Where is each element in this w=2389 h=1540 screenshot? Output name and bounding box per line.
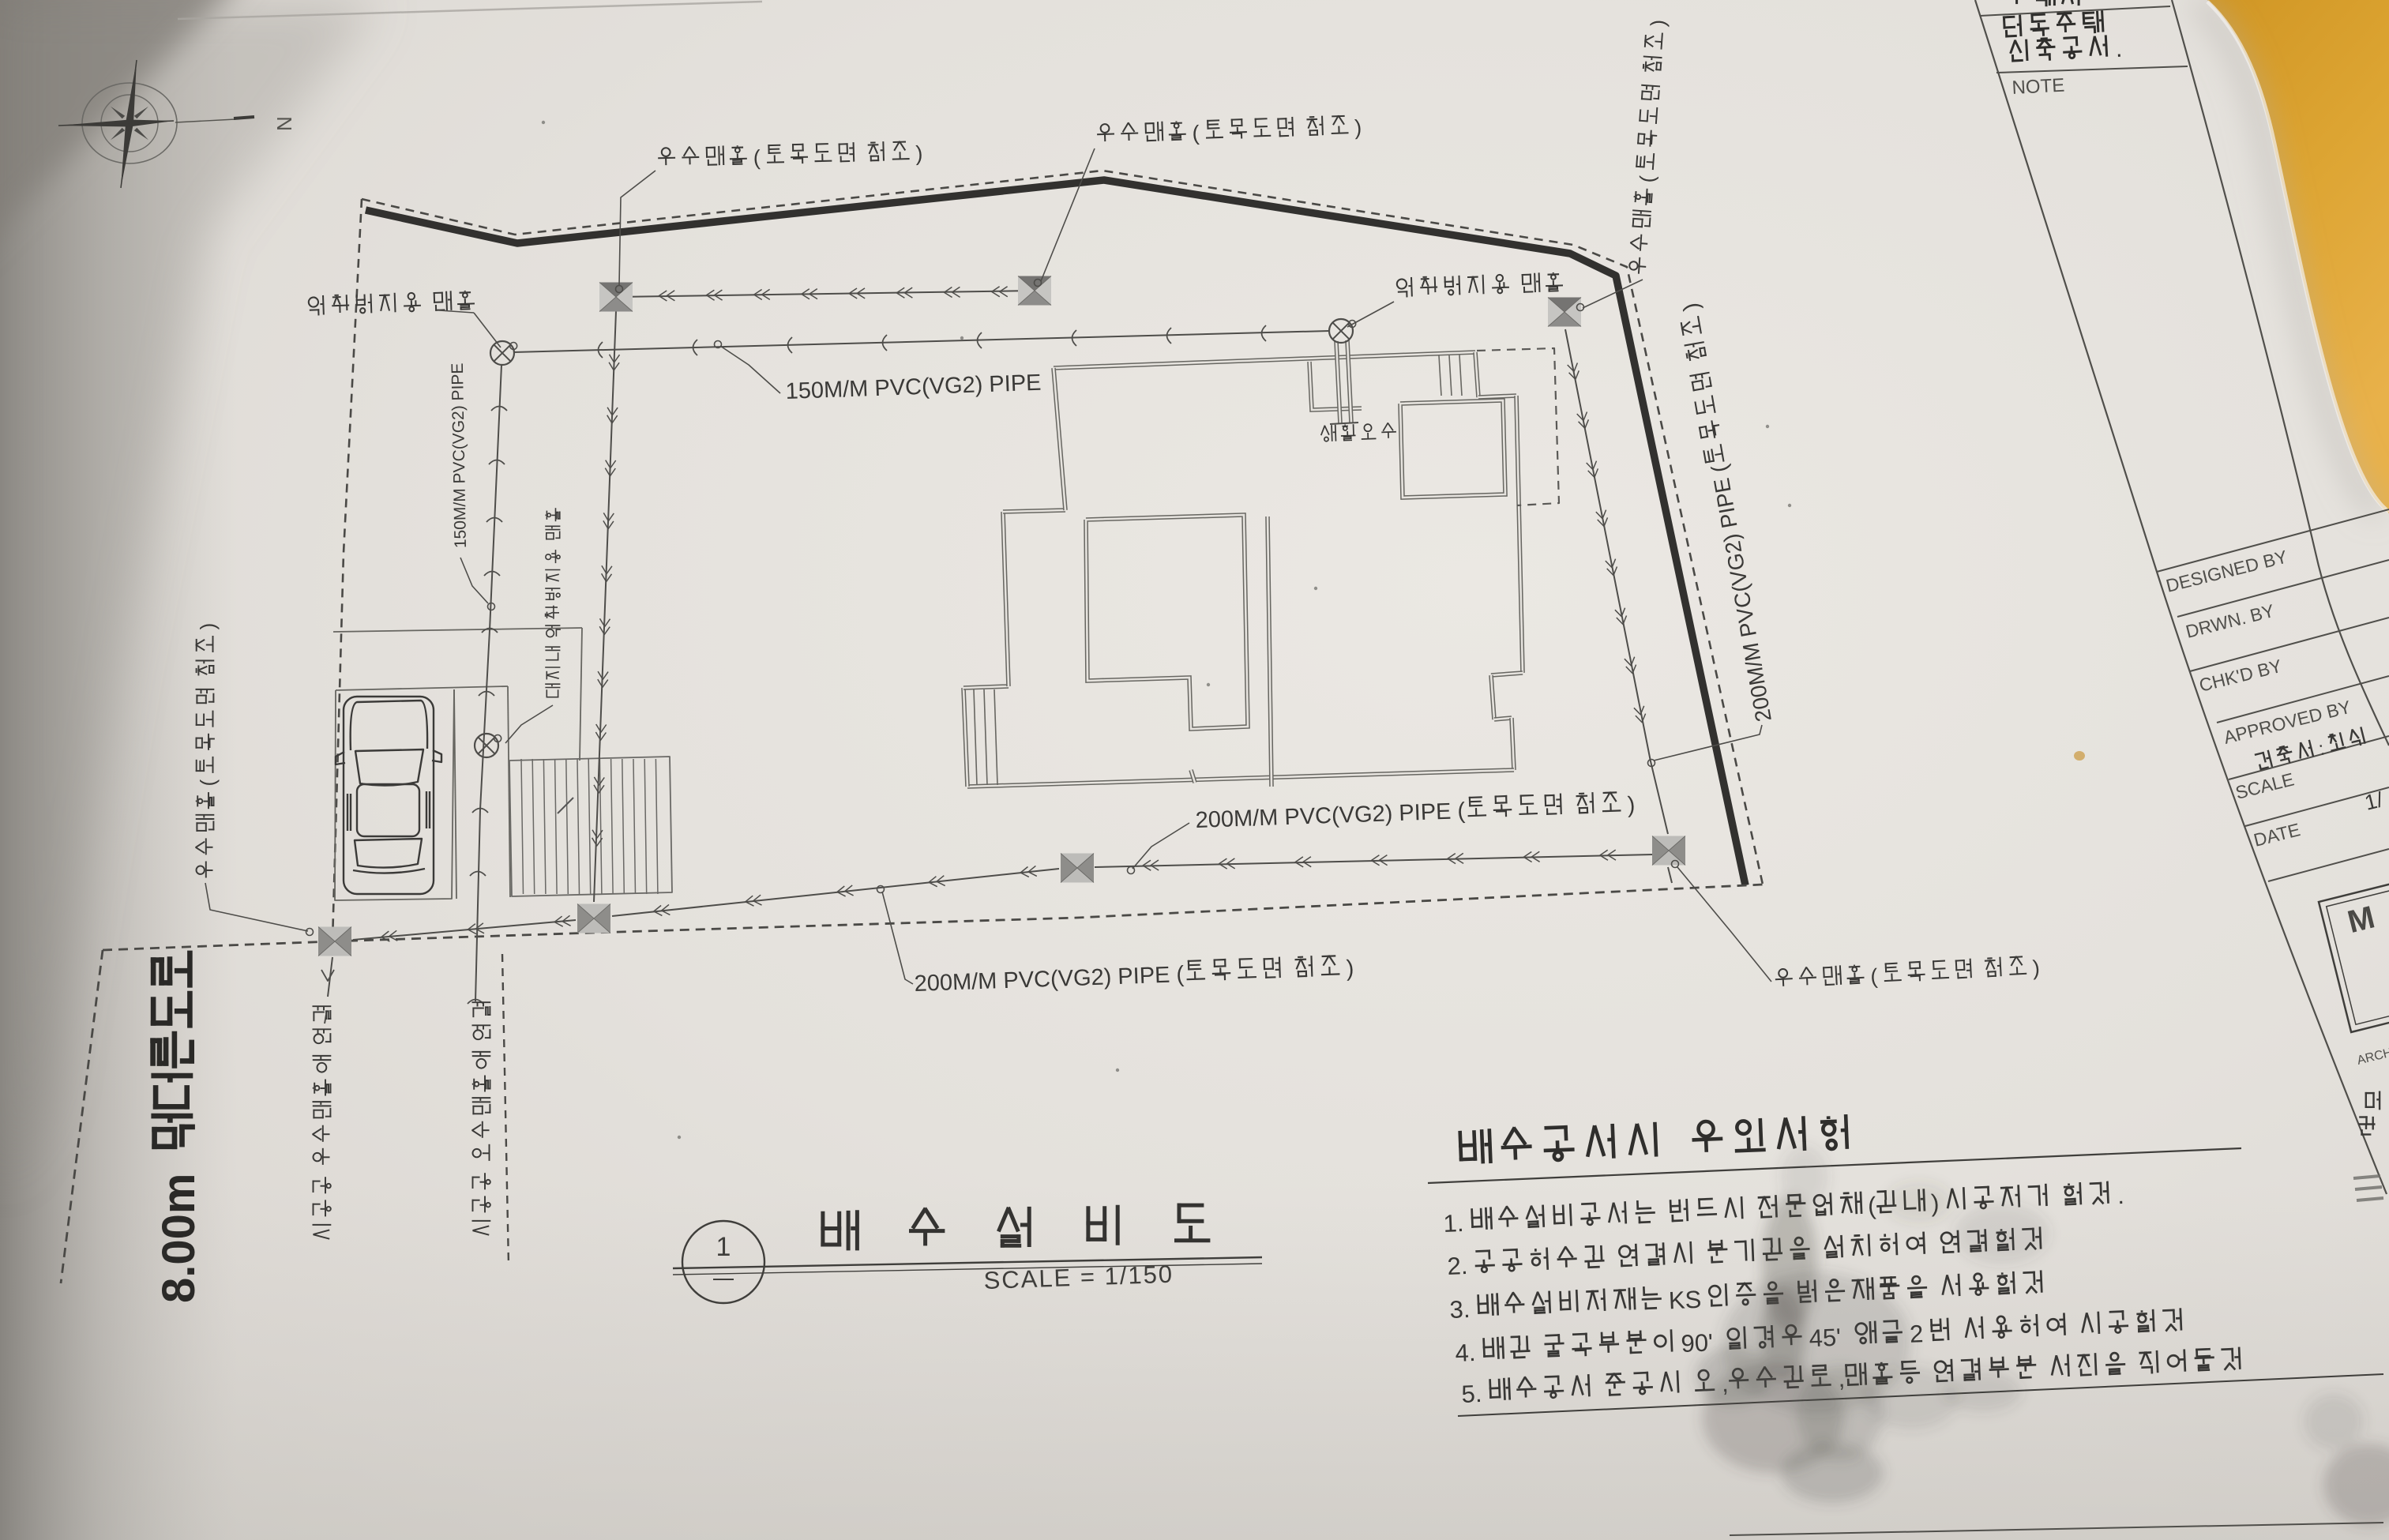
svg-text:2: 2 — [1909, 1320, 1924, 1348]
svg-text:N: N — [272, 116, 296, 131]
svg-text:2.: 2. — [1447, 1252, 1468, 1280]
svg-text:3.: 3. — [1449, 1295, 1471, 1324]
svg-text:(: ( — [1192, 121, 1200, 145]
svg-text:4.: 4. — [1455, 1339, 1476, 1367]
svg-text:): ) — [1627, 793, 1636, 818]
svg-text:KS: KS — [1668, 1286, 1702, 1315]
svg-text:.: . — [2115, 36, 2123, 62]
svg-text:NOTE: NOTE — [2011, 75, 2065, 99]
svg-text:1.: 1. — [1443, 1209, 1464, 1238]
svg-text:): ) — [2032, 956, 2041, 979]
svg-text:.: . — [2117, 1181, 2124, 1209]
svg-text:8.00m: 8.00m — [153, 1174, 205, 1303]
svg-text:): ) — [196, 623, 220, 630]
svg-text:(: ( — [753, 146, 761, 170]
svg-text:): ) — [915, 141, 923, 165]
svg-text:(: ( — [196, 779, 220, 787]
svg-text:1: 1 — [716, 1232, 731, 1262]
svg-text:): ) — [1354, 115, 1362, 139]
svg-text:(: ( — [1870, 964, 1879, 988]
svg-text:): ) — [1346, 956, 1354, 982]
svg-text:150M/M PVC(VG2) PIPE: 150M/M PVC(VG2) PIPE — [449, 362, 470, 548]
svg-text:5.: 5. — [1461, 1380, 1482, 1408]
